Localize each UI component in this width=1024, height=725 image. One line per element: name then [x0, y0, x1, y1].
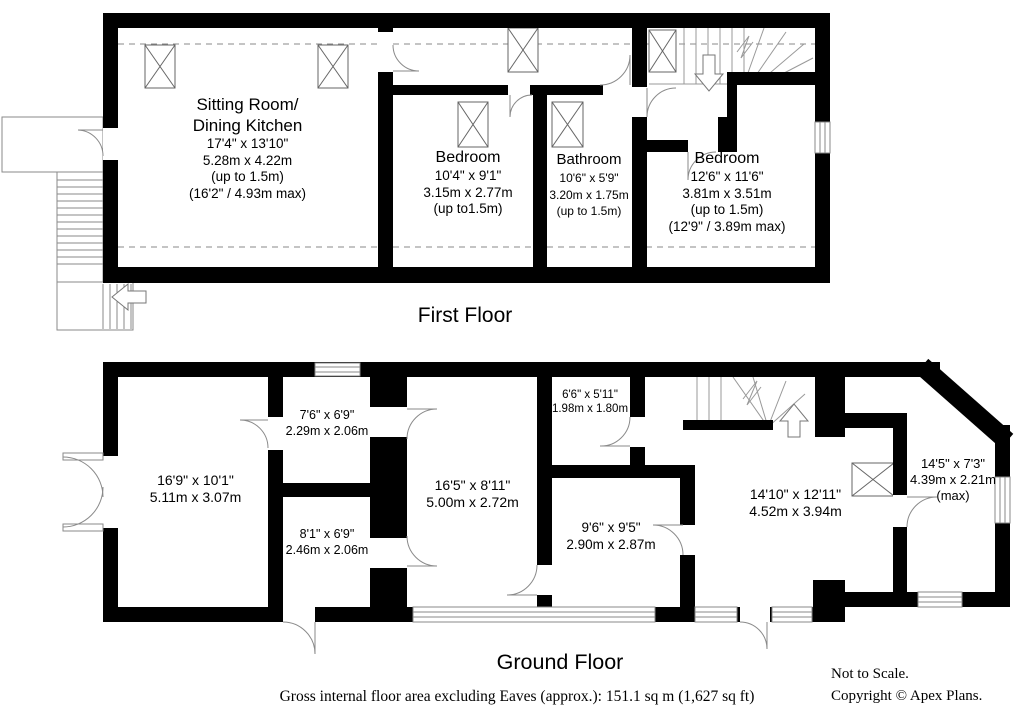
- room-dims-note: (max): [903, 488, 1003, 504]
- first-floor-title: First Floor: [360, 304, 570, 328]
- ground-floor-title: Ground Floor: [445, 650, 675, 674]
- room-label-8-1: 8'1" x 6'9" 2.46m x 2.06m: [283, 527, 371, 558]
- room-label-16-5: 16'5" x 8'11" 5.00m x 2.72m: [405, 477, 540, 511]
- room-label-bedroom-1: Bedroom 10'4" x 9'1" 3.15m x 2.77m (up t…: [398, 148, 538, 218]
- floor-area-note: Gross internal floor area excluding Eave…: [142, 688, 892, 706]
- room-dims-metric: 5.00m x 2.72m: [405, 494, 540, 511]
- window: [695, 607, 737, 622]
- room-label-bedroom-2: Bedroom 12'6" x 11'6" 3.81m x 3.51m (up …: [652, 149, 802, 235]
- rooflight-icon: [552, 102, 583, 147]
- room-label-6-6: 6'6" x 5'11" 1.98m x 1.80m: [546, 388, 634, 416]
- room-dims-metric: 2.29m x 2.06m: [283, 424, 371, 440]
- rooflight-icon: [318, 45, 348, 88]
- room-name: Bathroom: [528, 150, 650, 170]
- room-dims-imperial: 14'5" x 7'3": [903, 456, 1003, 472]
- room-dims-metric: 2.46m x 2.06m: [283, 543, 371, 559]
- room-dims-note: (12'9" / 3.89m max): [652, 219, 802, 236]
- room-dims-imperial: 8'1" x 6'9": [283, 527, 371, 543]
- rooflight-icon: [458, 102, 488, 147]
- door-swing: [740, 607, 770, 649]
- window: [918, 592, 962, 607]
- room-label-16-9: 16'9" x 10'1" 5.11m x 3.07m: [118, 472, 273, 506]
- room-dims-metric: 3.20m x 1.75m: [528, 187, 650, 204]
- room-dims-imperial: 16'9" x 10'1": [118, 472, 273, 489]
- room-dims-note: (16'2" / 4.93m max): [140, 186, 355, 203]
- room-dims-imperial: 10'6" x 5'9": [528, 170, 650, 187]
- room-dims-imperial: 17'4" x 13'10": [140, 136, 355, 153]
- room-dims-imperial: 9'6" x 9'5": [547, 520, 675, 537]
- window: [772, 607, 812, 622]
- room-dims-metric: 5.28m x 4.22m: [140, 153, 355, 170]
- room-label-14-10: 14'10" x 12'11" 4.52m x 3.94m: [718, 486, 873, 520]
- room-dims-metric: 1.98m x 1.80m: [546, 402, 634, 416]
- copyright-note: Copyright © Apex Plans.: [831, 686, 1021, 707]
- rooflight-icon: [649, 30, 676, 72]
- room-name: Sitting Room/: [140, 94, 355, 115]
- not-to-scale-note: Not to Scale.: [831, 664, 1021, 685]
- room-dims-metric: 2.90m x 2.87m: [547, 537, 675, 554]
- room-label-9-6: 9'6" x 9'5" 2.90m x 2.87m: [547, 520, 675, 553]
- room-dims-metric: 3.15m x 2.77m: [398, 185, 538, 202]
- window: [413, 607, 655, 622]
- room-dims-metric: 4.39m x 2.21m: [903, 472, 1003, 488]
- room-dims-note: (up to 1.5m): [652, 202, 802, 219]
- room-name: Bedroom: [398, 148, 538, 168]
- door-swing: [283, 607, 315, 654]
- room-dims-imperial: 16'5" x 8'11": [405, 477, 540, 494]
- room-dims-imperial: 14'10" x 12'11": [718, 486, 873, 503]
- room-dims-note: (up to 1.5m): [140, 169, 355, 186]
- rooflight-icon: [145, 45, 175, 88]
- room-dims-metric: 3.81m x 3.51m: [652, 186, 802, 203]
- rooflight-icon: [508, 28, 538, 72]
- room-dims-note: (up to 1.5m): [528, 203, 650, 220]
- window: [315, 363, 360, 376]
- room-label-7-6: 7'6" x 6'9" 2.29m x 2.06m: [283, 408, 371, 439]
- room-label-14-5: 14'5" x 7'3" 4.39m x 2.21m (max): [903, 456, 1003, 504]
- room-dims-metric: 5.11m x 3.07m: [118, 489, 273, 506]
- room-dims-metric: 4.52m x 3.94m: [718, 503, 873, 520]
- room-label-sitting-room: Sitting Room/ Dining Kitchen 17'4" x 13'…: [140, 94, 355, 202]
- room-name: Bedroom: [652, 149, 802, 169]
- room-dims-imperial: 10'4" x 9'1": [398, 168, 538, 185]
- room-dims-imperial: 6'6" x 5'11": [546, 388, 634, 402]
- double-door-swing: [63, 453, 118, 531]
- window: [815, 122, 830, 153]
- floorplan-page: Sitting Room/ Dining Kitchen 17'4" x 13'…: [0, 0, 1024, 725]
- room-name: Dining Kitchen: [140, 115, 355, 136]
- room-dims-note: (up to1.5m): [398, 201, 538, 218]
- room-dims-imperial: 12'6" x 11'6": [652, 169, 802, 186]
- room-label-bathroom: Bathroom 10'6" x 5'9" 3.20m x 1.75m (up …: [528, 150, 650, 220]
- room-dims-imperial: 7'6" x 6'9": [283, 408, 371, 424]
